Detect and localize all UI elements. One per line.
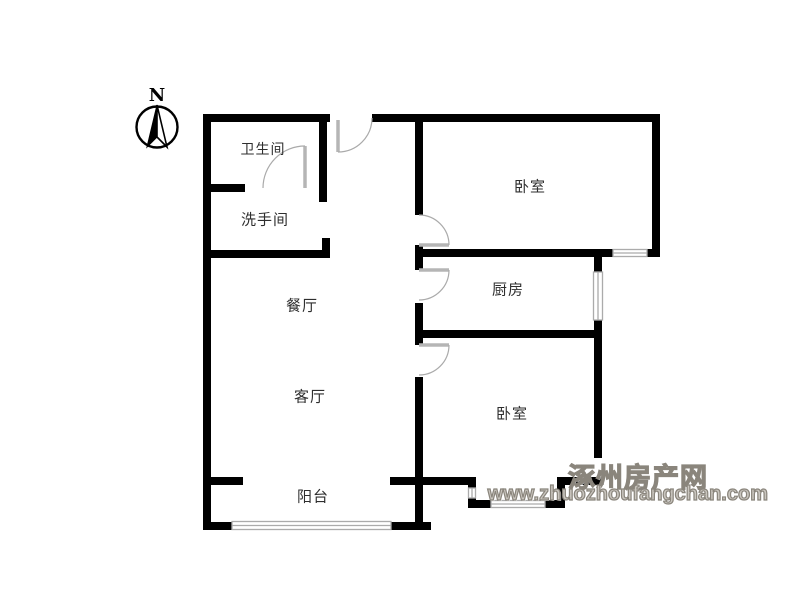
room-label-dining-room: 餐厅 <box>286 295 318 316</box>
room-label-bathroom: 卫生间 <box>241 139 286 159</box>
floorplan-drawing: N <box>0 0 800 600</box>
room-label-living-room: 客厅 <box>294 386 326 407</box>
room-label-bedroom-top: 卧室 <box>514 176 546 197</box>
room-label-bedroom-bottom: 卧室 <box>496 403 528 424</box>
entry-door-arc <box>338 118 372 152</box>
compass-north-label: N <box>149 85 165 106</box>
room-label-washroom: 洗手间 <box>241 209 289 230</box>
floorplan-canvas: N 卫生间 洗手间 卧室 厨房 餐厅 客厅 卧室 阳台 涿州房产网 www.zh… <box>0 0 800 600</box>
room-label-kitchen: 厨房 <box>492 279 524 300</box>
kitchen-door-arc <box>419 270 449 300</box>
watermark-site-url: www.zhuozhoufangchan.com <box>488 483 768 506</box>
compass-icon: N <box>137 85 178 148</box>
room-label-balcony: 阳台 <box>297 486 329 507</box>
bedroom-top-door-arc <box>419 215 449 245</box>
bedroom-bottom-door-arc <box>419 345 449 375</box>
